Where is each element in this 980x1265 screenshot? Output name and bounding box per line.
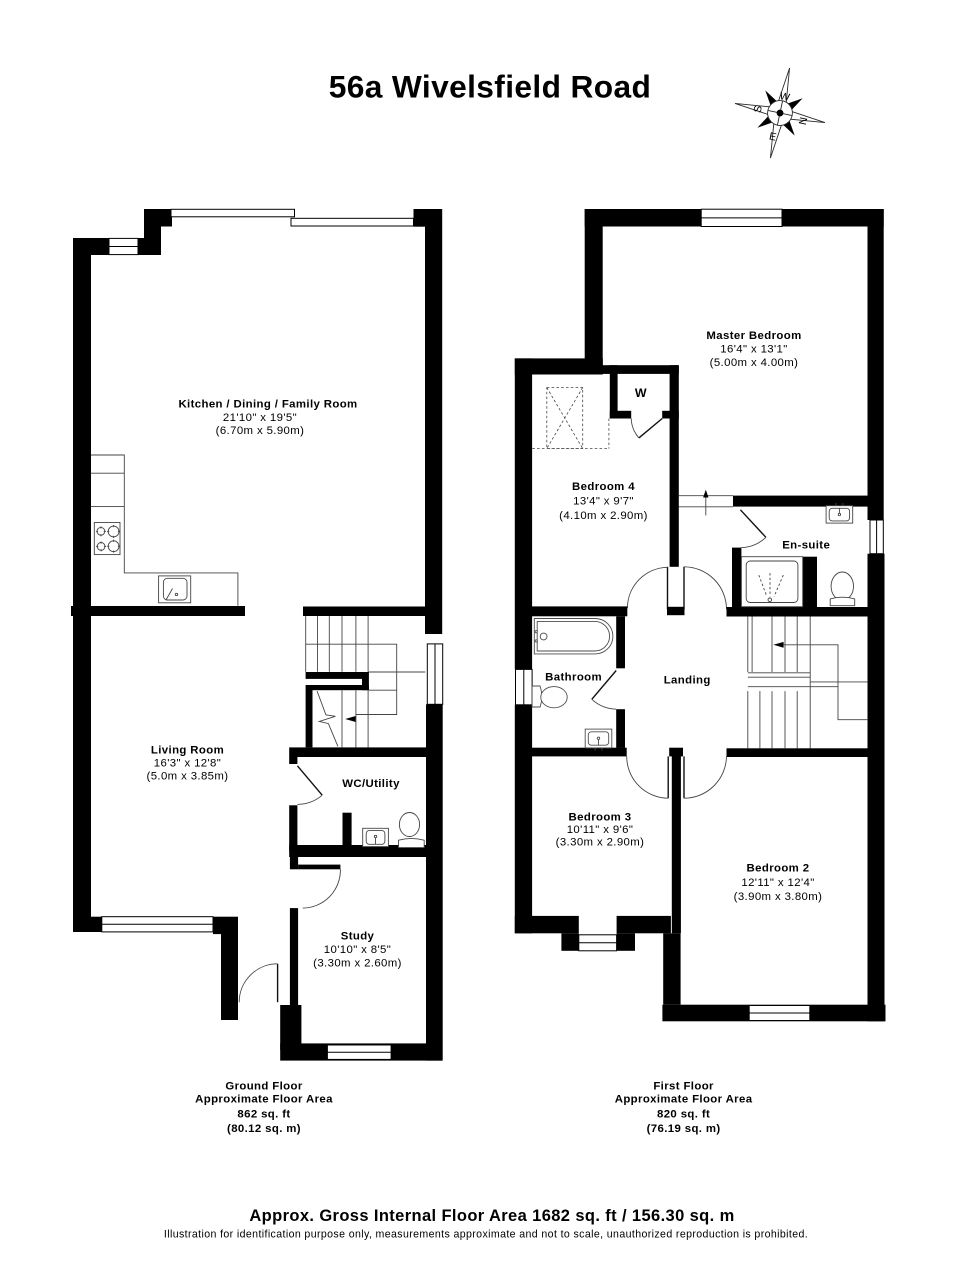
svg-text:16'3" x 12'8": 16'3" x 12'8" <box>154 757 221 769</box>
svg-text:(80.12 sq. m): (80.12 sq. m) <box>227 1123 301 1135</box>
svg-text:(4.10m x 2.90m): (4.10m x 2.90m) <box>559 510 648 522</box>
svg-text:(3.30m x 2.90m): (3.30m x 2.90m) <box>556 837 645 849</box>
svg-text:10'10" x 8'5": 10'10" x 8'5" <box>324 944 391 956</box>
svg-text:56a Wivelsfield Road: 56a Wivelsfield Road <box>329 69 652 105</box>
svg-text:Master Bedroom: Master Bedroom <box>706 330 801 342</box>
svg-text:(5.0m x 3.85m): (5.0m x 3.85m) <box>147 770 229 782</box>
svg-text:W: W <box>635 386 647 400</box>
svg-text:(3.90m x 3.80m): (3.90m x 3.80m) <box>734 891 823 903</box>
svg-text:(3.30m x 2.60m): (3.30m x 2.60m) <box>313 958 402 970</box>
svg-text:Approximate Floor Area: Approximate Floor Area <box>195 1094 333 1106</box>
svg-text:Bathroom: Bathroom <box>545 672 602 684</box>
svg-text:Approximate Floor Area: Approximate Floor Area <box>615 1094 753 1106</box>
svg-text:First Floor: First Floor <box>653 1080 714 1092</box>
svg-text:Landing: Landing <box>664 675 711 687</box>
svg-text:Bedroom 3: Bedroom 3 <box>569 811 632 823</box>
svg-text:Ground Floor: Ground Floor <box>225 1080 303 1092</box>
svg-text:12'11" x 12'4": 12'11" x 12'4" <box>741 877 814 889</box>
svg-text:10'11" x 9'6": 10'11" x 9'6" <box>567 824 634 836</box>
svg-text:16'4" x 13'1": 16'4" x 13'1" <box>720 343 787 355</box>
svg-text:Bedroom 2: Bedroom 2 <box>747 863 810 875</box>
svg-text:Bedroom 4: Bedroom 4 <box>572 481 635 493</box>
svg-text:(76.19 sq. m): (76.19 sq. m) <box>647 1123 721 1135</box>
svg-text:Study: Study <box>341 931 375 943</box>
svg-text:Kitchen / Dining / Family Room: Kitchen / Dining / Family Room <box>178 398 357 410</box>
svg-text:(5.00m x 4.00m): (5.00m x 4.00m) <box>710 357 799 369</box>
svg-text:Illustration for identificatio: Illustration for identification purpose … <box>164 1228 808 1240</box>
svg-text:WC/Utility: WC/Utility <box>342 778 400 790</box>
svg-text:21'10" x 19'5": 21'10" x 19'5" <box>223 412 297 424</box>
svg-text:En-suite: En-suite <box>782 540 830 552</box>
svg-text:Living Room: Living Room <box>151 744 224 756</box>
svg-text:Approx. Gross Internal Floor A: Approx. Gross Internal Floor Area 1682 s… <box>249 1207 734 1225</box>
svg-text:(6.70m x 5.90m): (6.70m x 5.90m) <box>216 425 305 437</box>
svg-text:820 sq. ft: 820 sq. ft <box>657 1109 710 1121</box>
svg-text:862 sq. ft: 862 sq. ft <box>237 1109 290 1121</box>
svg-text:13'4" x 9'7": 13'4" x 9'7" <box>573 495 634 507</box>
